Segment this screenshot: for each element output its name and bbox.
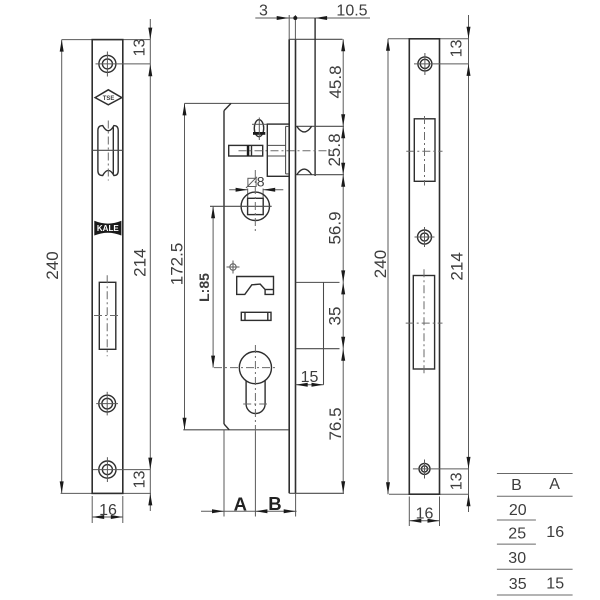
svg-text:A: A — [549, 476, 560, 493]
svg-text:B: B — [511, 477, 522, 494]
svg-text:76.5: 76.5 — [326, 407, 345, 440]
svg-text:25: 25 — [508, 526, 526, 543]
svg-text:13: 13 — [449, 472, 466, 490]
svg-text:30: 30 — [508, 550, 526, 567]
svg-text:16: 16 — [416, 506, 434, 523]
svg-text:KALE: KALE — [97, 224, 119, 233]
svg-text:13: 13 — [132, 471, 149, 489]
svg-text:56.9: 56.9 — [326, 211, 345, 244]
svg-text:35: 35 — [326, 307, 345, 326]
svg-text:16: 16 — [546, 524, 564, 541]
svg-text:172.5: 172.5 — [167, 243, 186, 286]
svg-text:15: 15 — [546, 576, 564, 593]
svg-text:25.8: 25.8 — [325, 133, 344, 166]
svg-text:8: 8 — [257, 174, 265, 190]
svg-text:45.8: 45.8 — [326, 65, 345, 98]
svg-text:214: 214 — [130, 249, 149, 277]
svg-text:L:85: L:85 — [196, 273, 212, 302]
svg-text:TSE: TSE — [103, 96, 115, 102]
svg-text:240: 240 — [371, 250, 390, 278]
svg-text:20: 20 — [509, 502, 527, 519]
svg-text:15: 15 — [301, 369, 319, 386]
svg-text:214: 214 — [447, 252, 466, 280]
svg-text:16: 16 — [99, 502, 117, 519]
svg-text:B: B — [268, 493, 281, 514]
svg-text:A: A — [234, 494, 247, 515]
svg-text:3: 3 — [259, 2, 268, 19]
svg-text:13: 13 — [131, 39, 148, 57]
svg-text:240: 240 — [43, 251, 62, 279]
svg-text:10.5: 10.5 — [336, 3, 367, 20]
svg-text:13: 13 — [449, 40, 466, 58]
svg-text:35: 35 — [509, 576, 527, 593]
